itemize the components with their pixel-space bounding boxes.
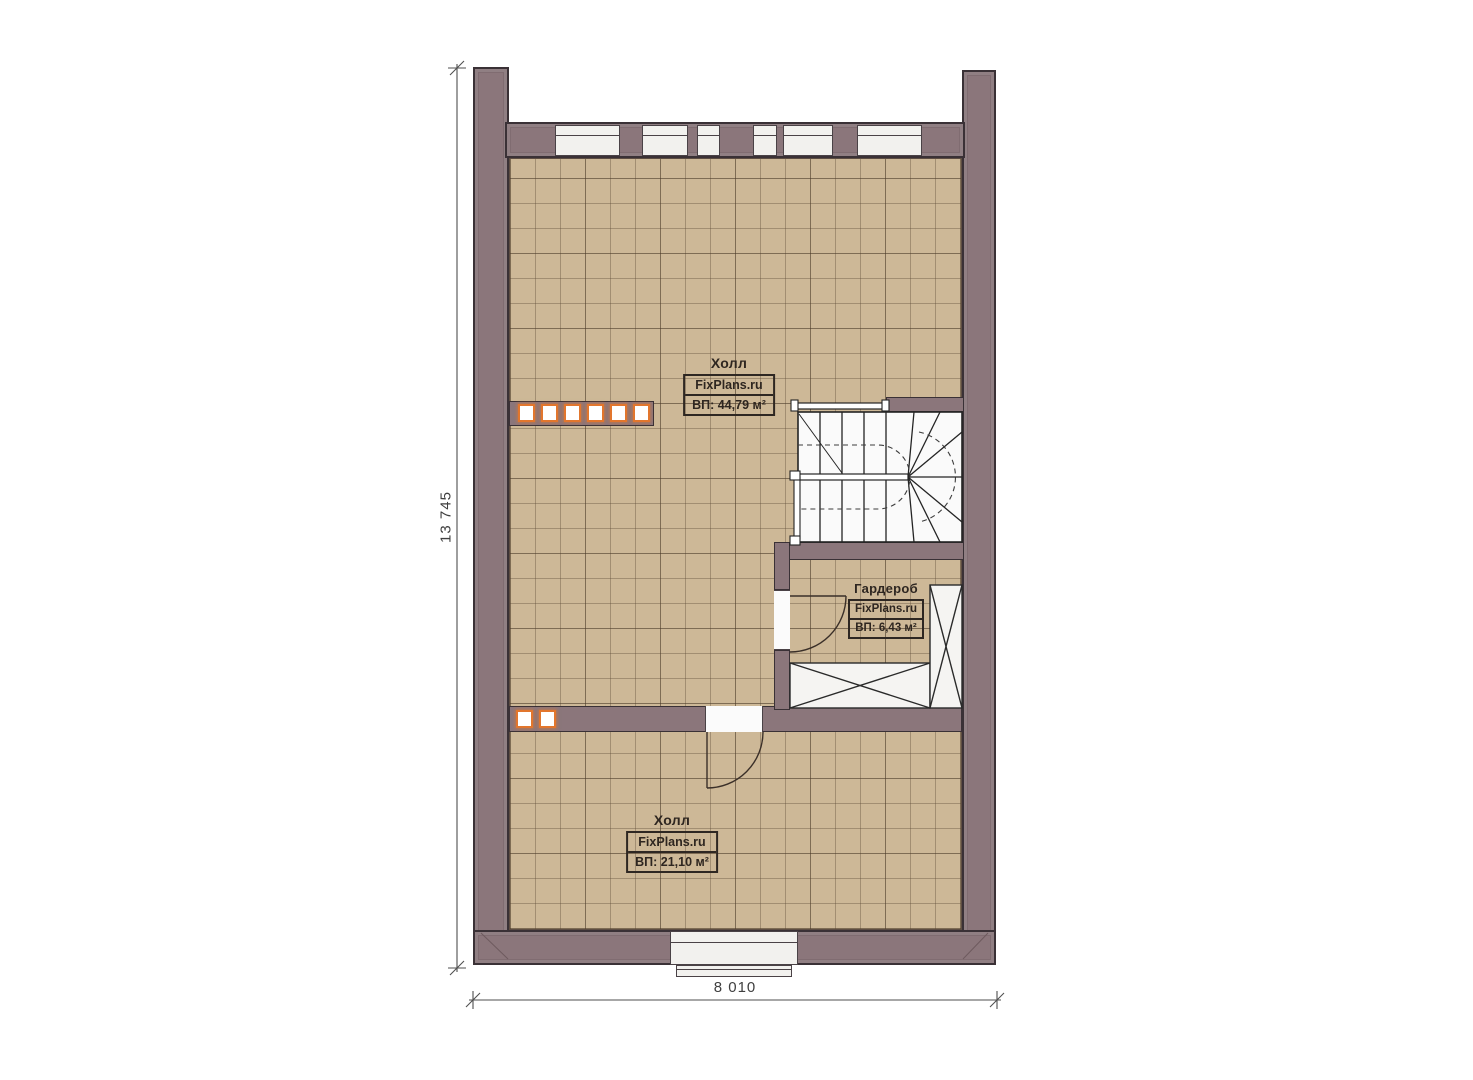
glass-block (564, 404, 581, 422)
partition-wall-wardrobe-upper (774, 542, 790, 590)
partition-wall-wardrobe-lower (774, 650, 790, 710)
room-info-box: FixPlans.ru ВП: 21,10 м² (626, 831, 718, 873)
partition-wall-stairs-top (886, 397, 964, 412)
door-opening (705, 706, 763, 732)
window-sill (676, 965, 792, 977)
brand-label: FixPlans.ru (628, 833, 716, 853)
room-info-box: FixPlans.ru ВП: 44,79 м² (683, 374, 775, 416)
room-label-hall-upper: Холл FixPlans.ru ВП: 44,79 м² (683, 355, 775, 416)
window (857, 125, 922, 156)
glass-block-row (518, 404, 650, 422)
dimension-label-vertical: 13 745 (438, 491, 455, 543)
room-name: Гардероб (848, 581, 924, 596)
room-info-box: FixPlans.ru ВП: 6,43 м² (848, 599, 924, 639)
room-area: ВП: 21,10 м² (628, 853, 716, 871)
window (697, 125, 720, 156)
room-name: Холл (683, 355, 775, 371)
door-opening (774, 590, 790, 650)
room-label-wardrobe: Гардероб FixPlans.ru ВП: 6,43 м² (848, 581, 924, 639)
glass-block (539, 710, 556, 728)
window (670, 931, 798, 965)
floorplan: Холл FixPlans.ru ВП: 44,79 м² Гардероб F… (0, 0, 1473, 1080)
glass-block (541, 404, 558, 422)
room-label-hall-lower: Холл FixPlans.ru ВП: 21,10 м² (626, 812, 718, 873)
wall-right (962, 70, 996, 965)
glass-block (516, 710, 533, 728)
partition-wall-stairs-bottom (774, 542, 964, 560)
glass-block (587, 404, 604, 422)
window (642, 125, 688, 156)
room-name: Холл (626, 812, 718, 828)
window (783, 125, 833, 156)
glass-block-row (516, 710, 556, 728)
window (555, 125, 620, 156)
wall-left (473, 67, 509, 965)
glass-block (518, 404, 535, 422)
room-area: ВП: 44,79 м² (685, 396, 773, 414)
window (753, 125, 777, 156)
brand-label: FixPlans.ru (850, 601, 922, 620)
brand-label: FixPlans.ru (685, 376, 773, 396)
glass-block (610, 404, 627, 422)
room-area: ВП: 6,43 м² (850, 620, 922, 637)
glass-block (633, 404, 650, 422)
dimension-label-horizontal: 8 010 (714, 979, 757, 996)
